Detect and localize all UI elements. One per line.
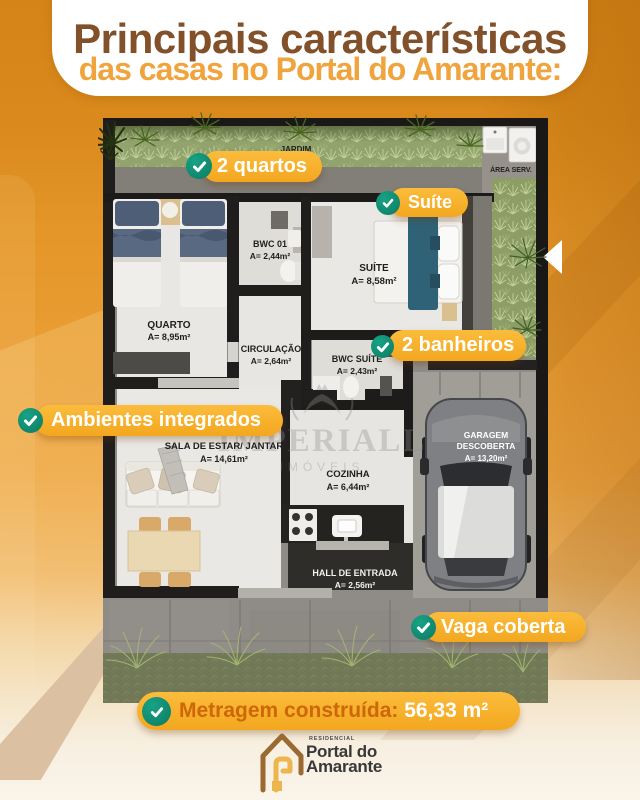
svg-text:SALA DE ESTAR/ JANTAR: SALA DE ESTAR/ JANTAR (165, 441, 284, 452)
svg-text:A= 6,44m²: A= 6,44m² (327, 482, 370, 492)
svg-text:A= 2,44m²: A= 2,44m² (250, 251, 291, 261)
svg-text:A= 8,58m²: A= 8,58m² (351, 276, 396, 287)
svg-text:SUÍTE: SUÍTE (359, 261, 389, 274)
svg-text:A= 2,43m²: A= 2,43m² (337, 366, 378, 376)
svg-text:GARAGEM: GARAGEM (464, 430, 508, 440)
svg-text:CIRCULAÇÃO: CIRCULAÇÃO (241, 344, 302, 354)
svg-text:A= 2,56m²: A= 2,56m² (335, 580, 376, 590)
svg-text:BWC 01: BWC 01 (253, 239, 287, 249)
svg-text:A= 2,64m²: A= 2,64m² (251, 356, 292, 366)
svg-text:A= 13,20m²: A= 13,20m² (465, 454, 508, 463)
svg-text:QUARTO: QUARTO (147, 320, 190, 331)
svg-text:A= 14,61m²: A= 14,61m² (200, 454, 248, 464)
svg-text:COZINHA: COZINHA (326, 469, 369, 480)
svg-text:ÁREA SERV.: ÁREA SERV. (490, 165, 532, 174)
svg-text:HALL DE ENTRADA: HALL DE ENTRADA (312, 568, 398, 578)
svg-text:A= 8,95m²: A= 8,95m² (148, 332, 191, 342)
svg-text:DESCOBERTA: DESCOBERTA (457, 441, 516, 451)
